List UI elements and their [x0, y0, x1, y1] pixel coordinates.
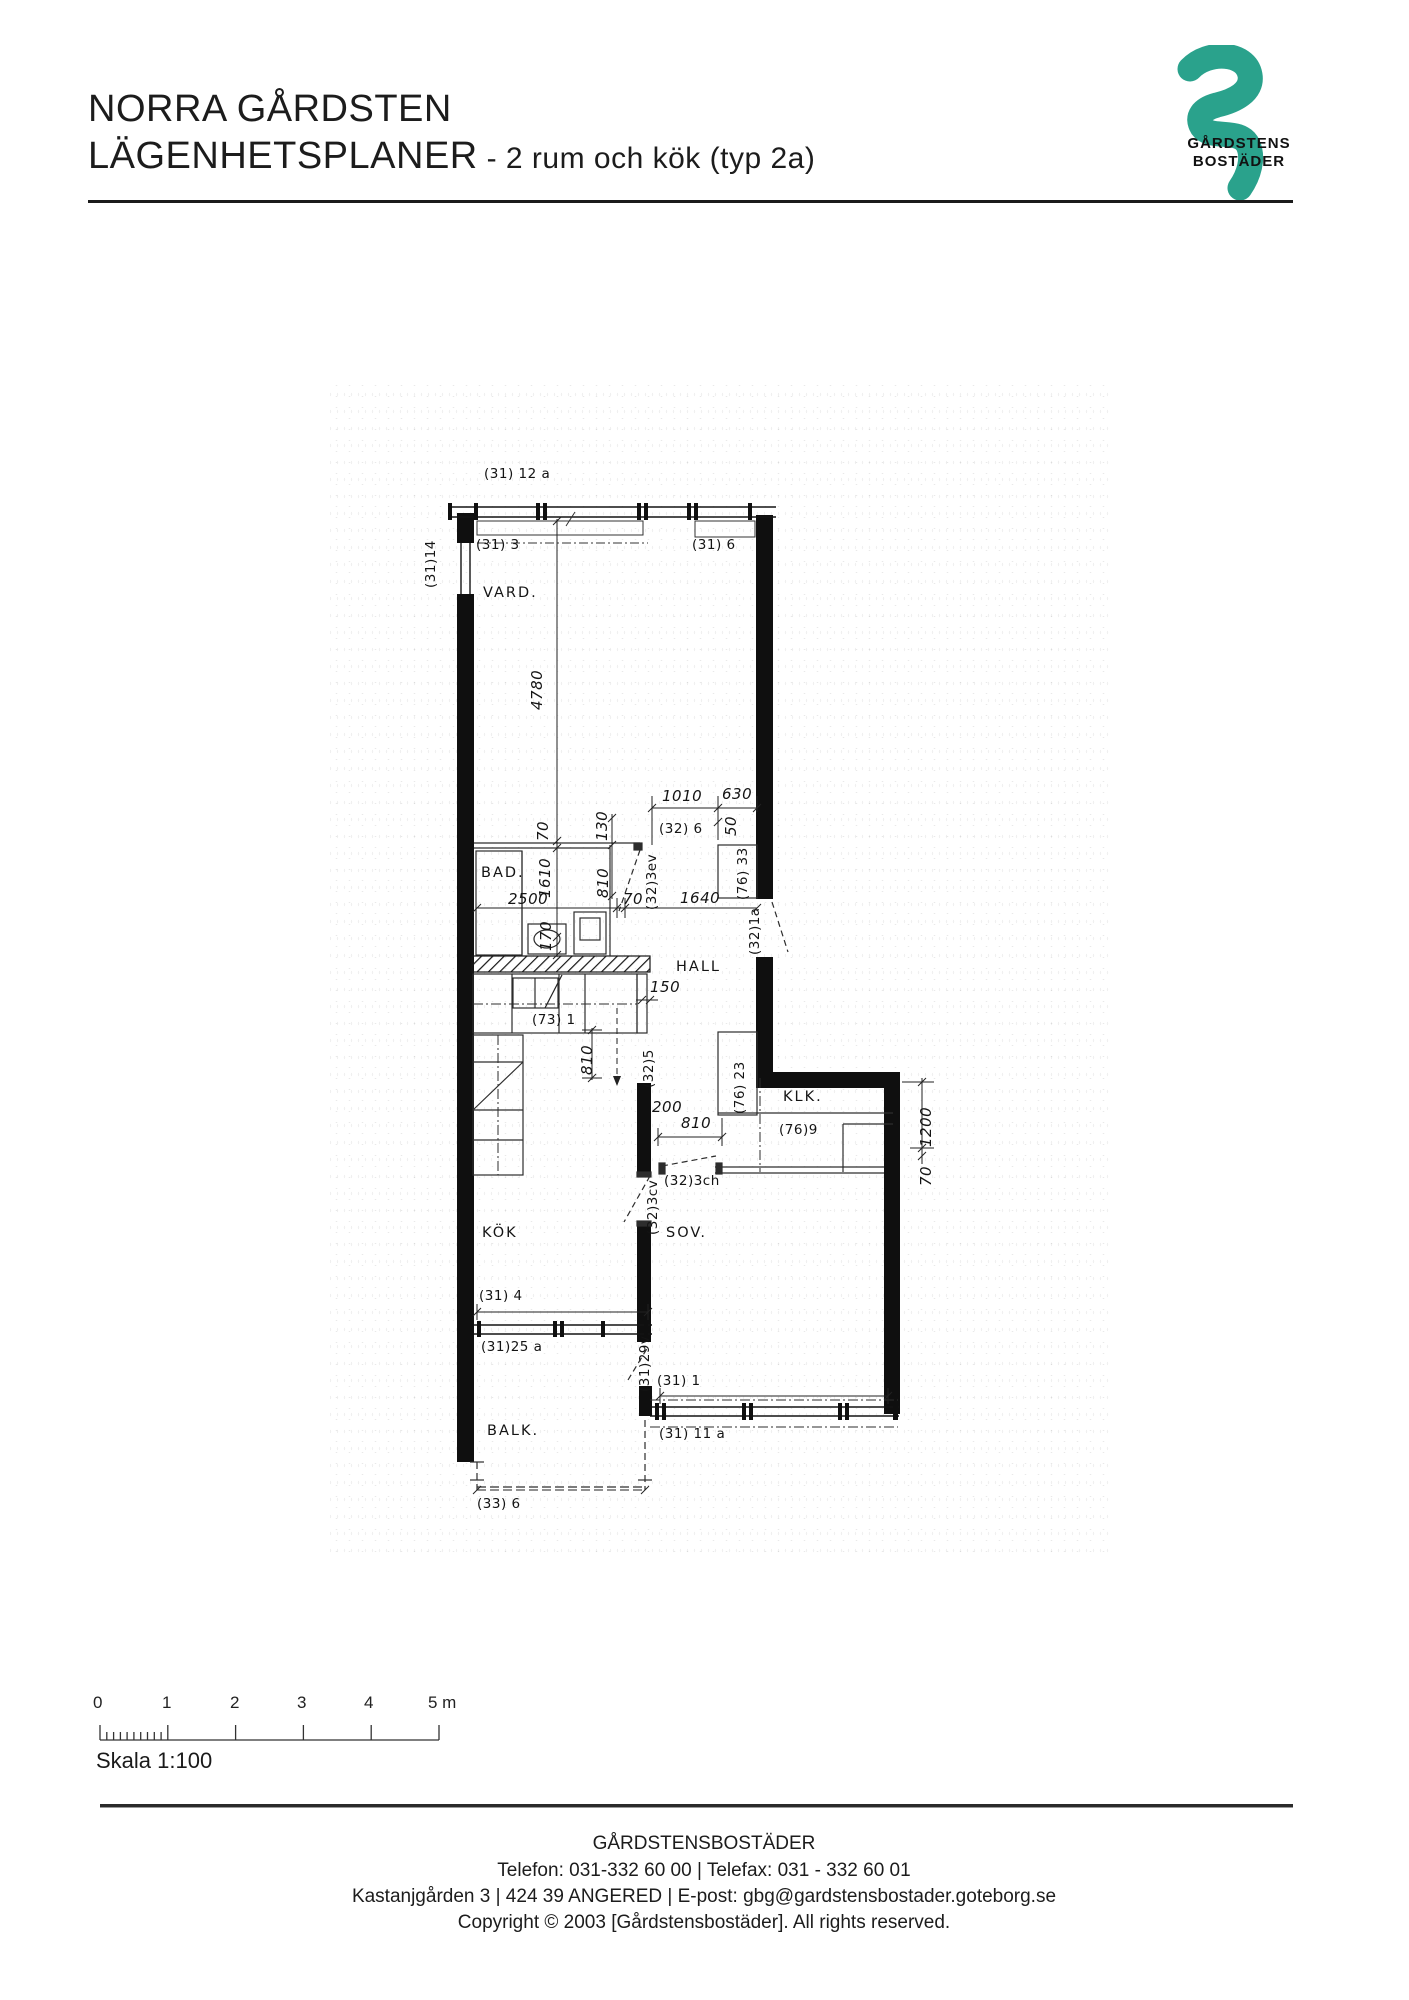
window-code-31-1: (31) 1: [657, 1374, 701, 1389]
scale-tick-2: 2: [230, 1693, 239, 1713]
dim-150: 150: [650, 980, 680, 995]
title-main: LÄGENHETSPLANER: [88, 135, 478, 177]
room-label-hall: HALL: [676, 960, 721, 975]
window-code-31-4: (31) 4: [479, 1289, 523, 1304]
door-code-31-29v: (31)29v: [638, 1336, 653, 1392]
dim-130: 130: [595, 811, 610, 841]
window-code-31-25a: (31)25 a: [481, 1340, 542, 1355]
balcony-outline: [470, 1400, 898, 1490]
door-code-32-1a: (32)1a: [748, 907, 763, 955]
dim-70-c: 70: [919, 1166, 934, 1186]
dim-1200: 1200: [919, 1107, 934, 1147]
room-label-livingroom: VARD.: [483, 586, 538, 601]
company-logo: GÅRDSTENS BOSTÄDER: [1150, 45, 1290, 200]
window-code-31-11a: (31) 11 a: [659, 1427, 725, 1442]
dim-810-c: 810: [681, 1116, 711, 1131]
title-suffix: - 2 rum och kök (typ 2a): [478, 142, 816, 175]
room-label-bathroom: BAD.: [481, 866, 525, 881]
window-code-31-6: (31) 6: [692, 538, 736, 553]
footer-phone: Telefon: 031-332 60 00 | Telefax: 031 - …: [104, 1860, 1304, 1882]
scale-tick-1: 1: [162, 1693, 171, 1713]
footer-rule: [100, 1804, 1293, 1808]
room-label-bedroom: SOV.: [666, 1226, 707, 1241]
closet-code-76-33: (76) 33: [736, 847, 751, 900]
dim-2500: 2500: [508, 892, 548, 907]
room-label-closet: KLK.: [783, 1090, 823, 1105]
logo-text-line-2: BOSTÄDER: [1193, 153, 1285, 170]
door-code-32-3cv: (32)3cv: [646, 1180, 661, 1235]
window-code-31-3: (31) 3: [476, 538, 520, 553]
door-code-32-6: (32) 6: [659, 822, 703, 837]
dim-810-a: 810: [596, 868, 611, 898]
title-line-2: LÄGENHETSPLANER - 2 rum och kök (typ 2a): [88, 133, 815, 182]
window-code-31-14: (31)14: [424, 540, 439, 588]
dim-170: 170: [539, 921, 554, 951]
bedroom-walls-doors: [624, 1156, 884, 1380]
logo-text-line-1: GÅRDSTENS: [1187, 135, 1290, 152]
room-label-kitchen: KÖK: [482, 1226, 518, 1241]
kitchen-fixtures: [473, 974, 647, 1175]
footer-address: Kastanjgården 3 | 424 39 ANGERED | E-pos…: [104, 1886, 1304, 1908]
dim-50: 50: [724, 816, 739, 836]
footer-copyright: Copyright © 2003 [Gårdstensbostäder]. Al…: [104, 1912, 1304, 1934]
room-label-balcony: BALK.: [487, 1424, 539, 1439]
dim-810-b: 810: [580, 1045, 595, 1075]
balcony-code-33-6: (33) 6: [477, 1497, 521, 1512]
scale-tick-3: 3: [297, 1693, 306, 1713]
dim-1640: 1640: [680, 891, 720, 906]
dim-630: 630: [722, 787, 752, 802]
fitting-code-73-1: (73) 1: [532, 1013, 576, 1028]
door-code-32-3ch: (32)3ch: [664, 1174, 720, 1189]
title-line-1: NORRA GÅRDSTEN: [88, 86, 815, 133]
scale-bar: [98, 1722, 448, 1744]
closet-code-76-23: (76) 23: [733, 1061, 748, 1114]
header-rule: [88, 200, 1293, 203]
dim-4780: 4780: [530, 670, 545, 710]
page-title: NORRA GÅRDSTEN LÄGENHETSPLANER - 2 rum o…: [88, 86, 815, 182]
dim-200: 200: [652, 1100, 682, 1115]
dim-70-b: 70: [623, 892, 643, 907]
hatched-partition: [472, 956, 650, 1008]
scale-tick-4: 4: [364, 1693, 373, 1713]
dim-1010: 1010: [662, 789, 702, 804]
door-code-32-5: (32)5: [642, 1049, 657, 1088]
scale-tick-5m: 5 m: [428, 1693, 456, 1713]
scale-caption: Skala 1:100: [96, 1748, 212, 1774]
window-code-31-12a: (31) 12 a: [484, 467, 550, 482]
footer-company: GÅRDSTENSBOSTÄDER: [104, 1833, 1304, 1855]
document-page: NORRA GÅRDSTEN LÄGENHETSPLANER - 2 rum o…: [0, 0, 1409, 2000]
dim-70-a: 70: [536, 821, 551, 841]
scale-tick-0: 0: [93, 1693, 102, 1713]
closet-code-76-9: (76)9: [779, 1123, 818, 1138]
door-code-32-3ev: (32)3ev: [645, 854, 660, 910]
